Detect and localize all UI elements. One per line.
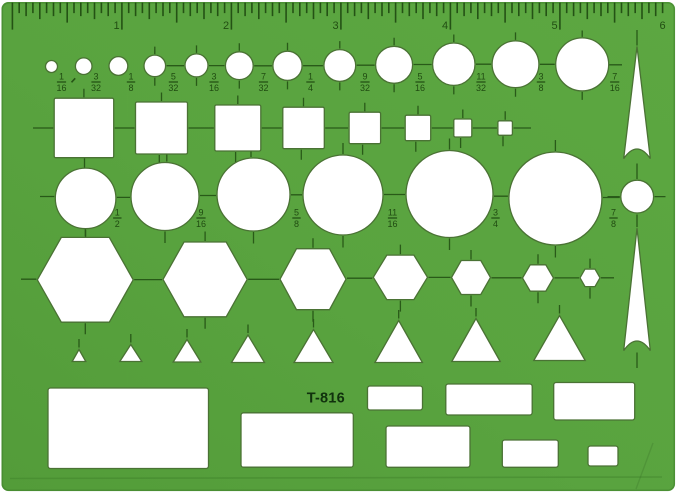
svg-text:16: 16 — [415, 83, 425, 93]
svg-text:16: 16 — [56, 83, 66, 93]
svg-text:3: 3 — [538, 71, 543, 81]
svg-text:9: 9 — [198, 207, 203, 217]
svg-text:5: 5 — [294, 207, 299, 217]
svg-text:3: 3 — [493, 207, 498, 217]
svg-text:5: 5 — [171, 71, 176, 81]
svg-text:4: 4 — [308, 83, 313, 93]
svg-text:5: 5 — [417, 71, 422, 81]
svg-text:6: 6 — [659, 20, 665, 32]
svg-text:16: 16 — [610, 83, 620, 93]
svg-text:32: 32 — [476, 83, 486, 93]
svg-text:32: 32 — [360, 83, 370, 93]
svg-text:3: 3 — [333, 20, 339, 32]
svg-text:11: 11 — [476, 71, 485, 81]
svg-text:3: 3 — [211, 71, 216, 81]
svg-text:16: 16 — [196, 219, 206, 229]
svg-text:3: 3 — [93, 71, 98, 81]
svg-text:4: 4 — [493, 219, 498, 229]
svg-text:1: 1 — [128, 71, 133, 81]
svg-text:11: 11 — [388, 207, 397, 217]
svg-text:8: 8 — [611, 219, 616, 229]
svg-text:7: 7 — [261, 71, 266, 81]
svg-text:7: 7 — [612, 71, 617, 81]
svg-text:1: 1 — [59, 71, 64, 81]
svg-text:T-816: T-816 — [307, 390, 345, 406]
svg-text:2: 2 — [223, 20, 229, 32]
svg-text:2: 2 — [115, 219, 120, 229]
svg-text:8: 8 — [128, 83, 133, 93]
svg-text:8: 8 — [538, 83, 543, 93]
svg-text:32: 32 — [91, 83, 101, 93]
svg-text:32: 32 — [168, 83, 178, 93]
svg-text:7: 7 — [611, 207, 616, 217]
svg-text:1: 1 — [308, 71, 313, 81]
svg-text:8: 8 — [294, 219, 299, 229]
svg-text:32: 32 — [258, 83, 268, 93]
svg-text:4: 4 — [442, 20, 448, 32]
svg-text:5: 5 — [552, 20, 558, 32]
svg-text:1: 1 — [115, 207, 120, 217]
svg-text:1: 1 — [114, 20, 120, 32]
svg-text:16: 16 — [209, 83, 219, 93]
svg-text:9: 9 — [362, 71, 367, 81]
svg-text:16: 16 — [387, 219, 397, 229]
